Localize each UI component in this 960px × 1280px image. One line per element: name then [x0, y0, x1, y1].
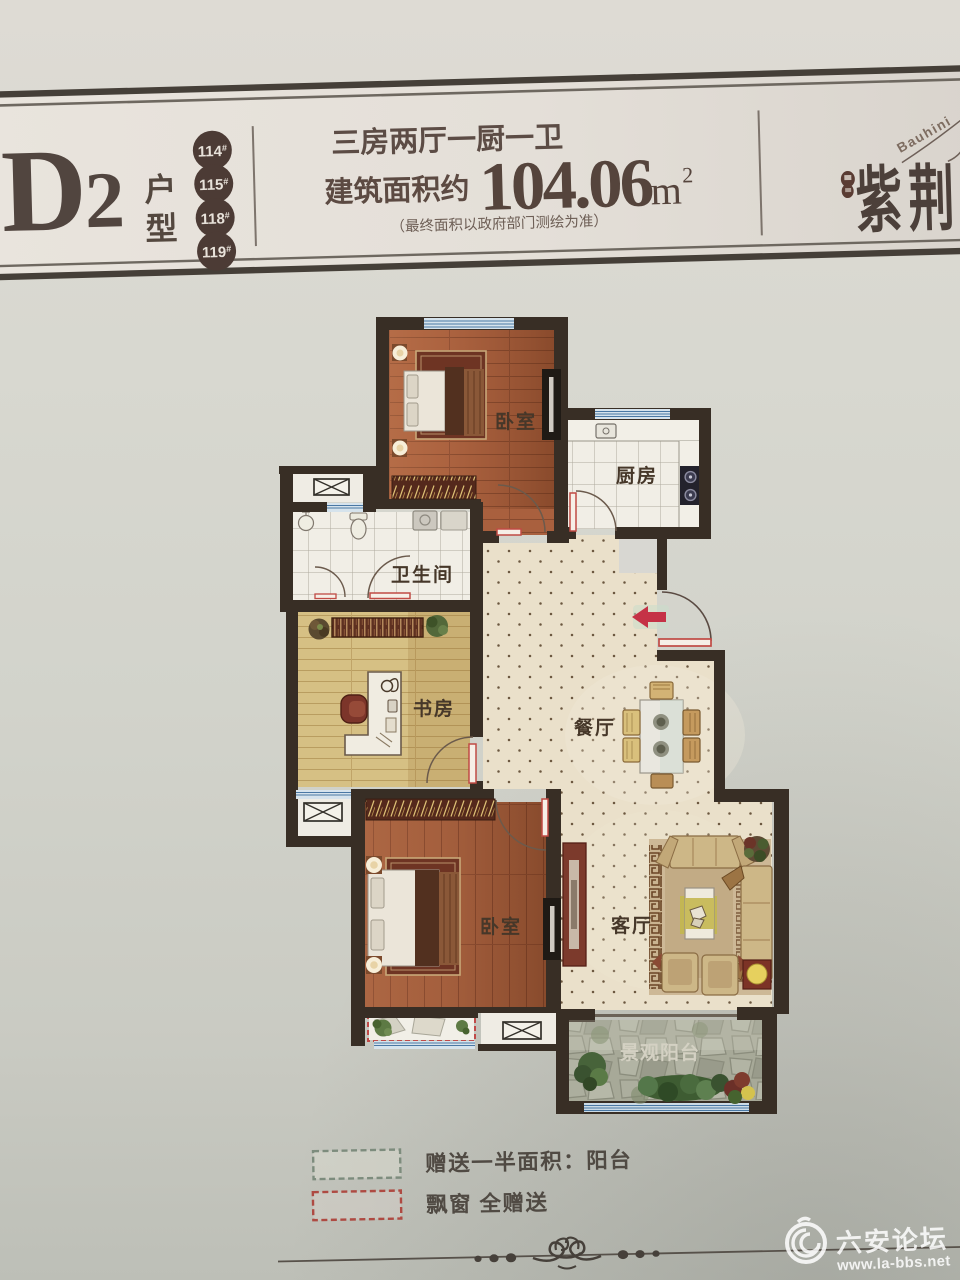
svg-text:户: 户 — [144, 171, 177, 208]
svg-text:书房: 书房 — [413, 697, 455, 720]
svg-text:厨房: 厨房 — [616, 464, 658, 487]
svg-text:建筑面积约: 建筑面积约 — [324, 172, 470, 209]
svg-text:客厅: 客厅 — [611, 914, 653, 937]
svg-text:紫荆: 紫荆 — [855, 160, 960, 243]
svg-text:赠送一半面积：阳台: 赠送一半面积：阳台 — [425, 1147, 632, 1176]
svg-text:卧室: 卧室 — [480, 915, 522, 938]
svg-text:型: 型 — [145, 210, 178, 247]
svg-text:六安论坛: 六安论坛 — [835, 1223, 948, 1258]
svg-text:104.06: 104.06 — [478, 144, 653, 225]
svg-text:卫生间: 卫生间 — [391, 563, 454, 586]
svg-text:D: D — [0, 124, 88, 257]
svg-text:2: 2 — [83, 156, 125, 245]
svg-text:2: 2 — [682, 162, 694, 187]
svg-text:飘窗 全赠送: 飘窗 全赠送 — [426, 1190, 549, 1217]
svg-text:餐厅: 餐厅 — [574, 716, 616, 739]
svg-text:m: m — [650, 168, 682, 214]
svg-text:景观阳台: 景观阳台 — [620, 1041, 700, 1064]
svg-text:卧室: 卧室 — [495, 410, 537, 433]
